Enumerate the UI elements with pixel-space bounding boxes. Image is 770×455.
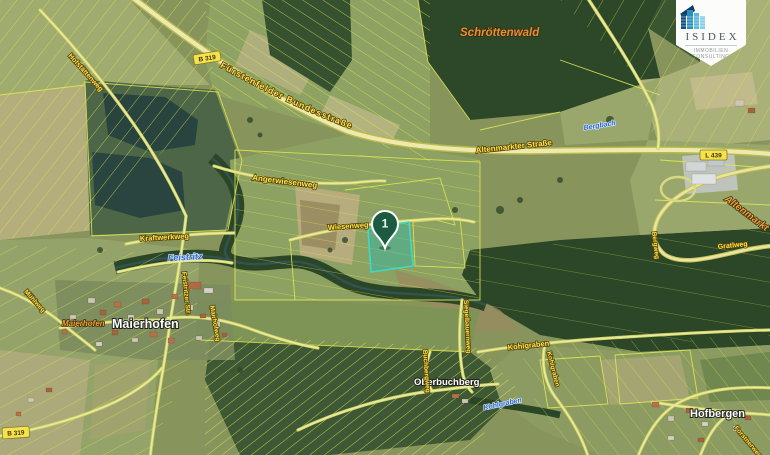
logo-title: ISIDEX <box>679 31 746 43</box>
label-feistritz: Feistritz <box>168 251 203 263</box>
svg-text:L 439: L 439 <box>705 153 722 160</box>
label-maierhofen: Maierhofen <box>112 317 179 331</box>
road-badge-l439: L 439 <box>700 150 727 160</box>
building-icon <box>676 4 710 30</box>
svg-text:B 319: B 319 <box>7 429 25 437</box>
label-hofbergen: Hofbergen <box>690 408 745 420</box>
road-badge-b319-bottom: B 319 <box>2 426 30 439</box>
label-maierhofen-klein: Maierhofen <box>62 319 105 328</box>
marker-number: 1 <box>382 217 389 231</box>
map-canvas[interactable]: 1 Fürstenfelder Bundesstraße Hofstättenw… <box>0 0 770 455</box>
label-schroettenwald: Schröttenwald <box>460 27 540 39</box>
logo-divider <box>685 45 737 46</box>
aerial-map[interactable]: 1 Fürstenfelder Bundesstraße Hofstättenw… <box>0 0 770 455</box>
